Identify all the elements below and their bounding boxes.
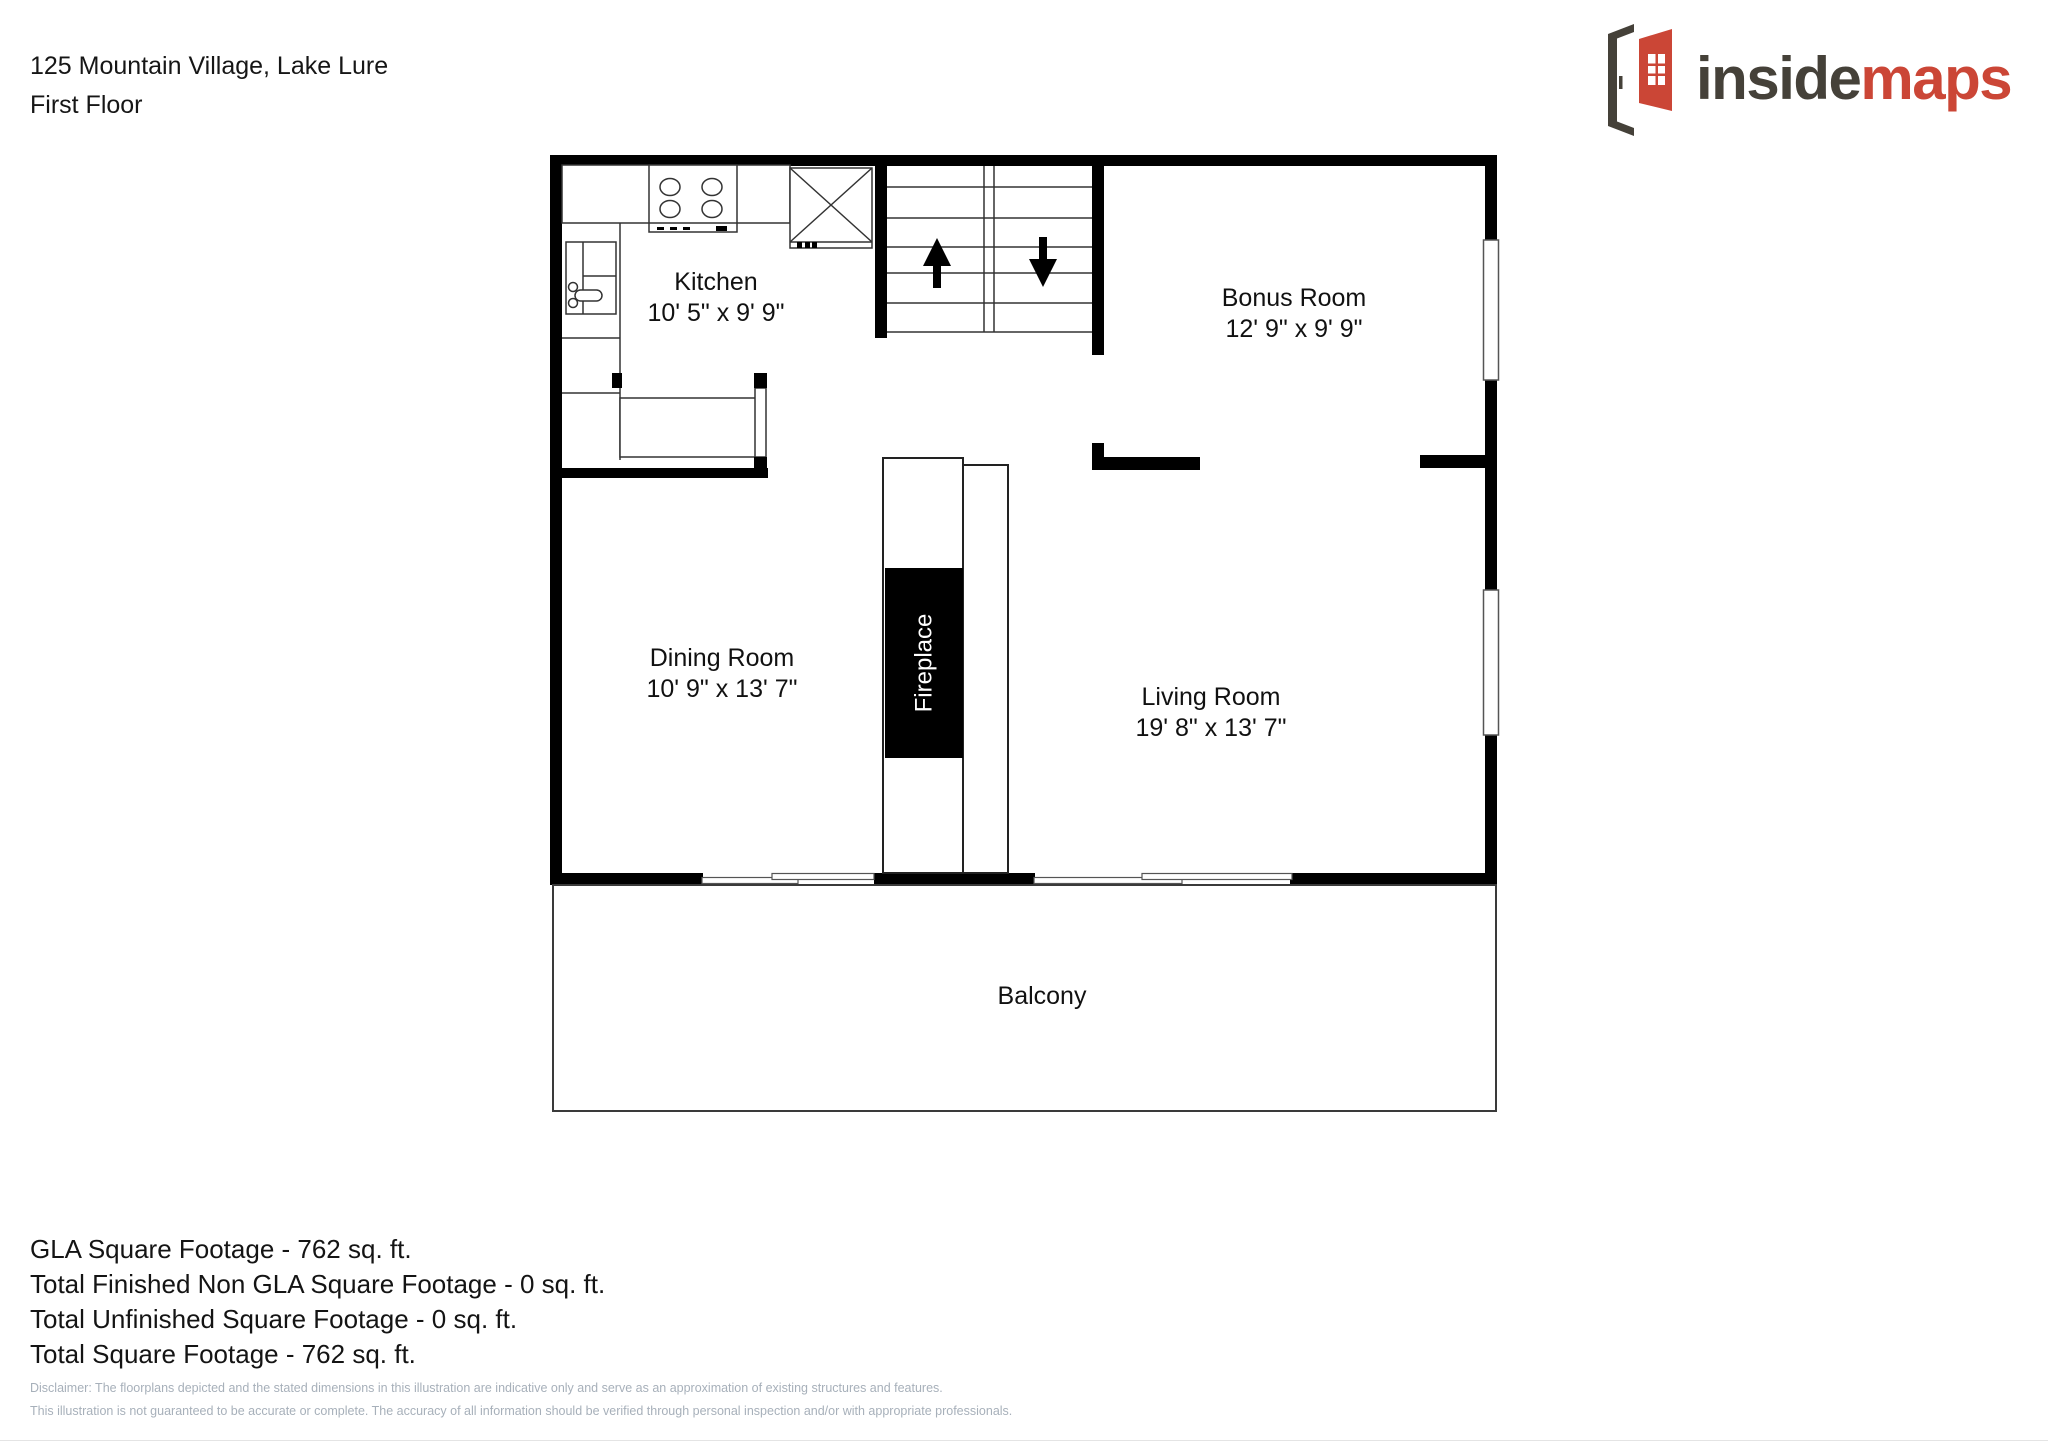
- stairs-up-arrow-icon: [923, 238, 951, 288]
- fireplace-label: Fireplace: [911, 614, 938, 713]
- gla-square-footage: GLA Square Footage - 762 sq. ft.: [30, 1232, 605, 1267]
- disclaimer-line-1: Disclaimer: The floorplans depicted and …: [30, 1377, 1012, 1400]
- open-door-icon: [1608, 22, 1682, 140]
- square-footage-summary: GLA Square Footage - 762 sq. ft. Total F…: [30, 1232, 605, 1372]
- outer-walls: [550, 155, 1497, 885]
- stairs-down-arrow-icon: [1029, 237, 1057, 287]
- logo-word-inside: inside: [1696, 45, 1860, 112]
- floorplan-drawing: Fireplace: [540, 140, 1510, 1130]
- header-address-block: 125 Mountain Village, Lake Lure First Fl…: [30, 47, 388, 125]
- living-room-dims: 19' 8" x 13' 7": [1135, 714, 1286, 742]
- bonus-room-dims: 12' 9" x 9' 9": [1225, 315, 1362, 343]
- unfinished-square-footage: Total Unfinished Square Footage - 0 sq. …: [30, 1302, 605, 1337]
- living-room-window: [1484, 590, 1499, 735]
- balcony-sliding-door-left: [702, 874, 874, 884]
- dining-room-label: Dining Room: [650, 644, 795, 672]
- kitchen-dims: 10' 5" x 9' 9": [647, 299, 784, 327]
- balcony-sliding-door-right: [1034, 874, 1292, 884]
- total-square-footage: Total Square Footage - 762 sq. ft.: [30, 1337, 605, 1372]
- page-bottom-edge: [0, 1440, 2048, 1441]
- disclaimer-line-2: This illustration is not guaranteed to b…: [30, 1400, 1012, 1423]
- non-gla-square-footage: Total Finished Non GLA Square Footage - …: [30, 1267, 605, 1302]
- balcony-label: Balcony: [998, 982, 1087, 1010]
- staircase: [875, 166, 1104, 355]
- bonus-room-label: Bonus Room: [1222, 284, 1367, 312]
- floorplan-page: 125 Mountain Village, Lake Lure First Fl…: [0, 0, 2048, 1447]
- interior-walls: [1092, 443, 1487, 470]
- disclaimer-block: Disclaimer: The floorplans depicted and …: [30, 1377, 1012, 1423]
- logo-word-maps: maps: [1860, 45, 2011, 112]
- insidemaps-logo: insidemaps: [1608, 22, 2011, 140]
- living-room-label: Living Room: [1142, 683, 1281, 711]
- fireplace: Fireplace: [883, 458, 1008, 873]
- floor-label: First Floor: [30, 86, 388, 125]
- logo-wordmark: insidemaps: [1696, 49, 2011, 113]
- bonus-room-window: [1484, 240, 1499, 380]
- address-line: 125 Mountain Village, Lake Lure: [30, 47, 388, 86]
- kitchen-label: Kitchen: [674, 268, 757, 296]
- appliance-x-icon: [790, 168, 872, 248]
- dining-room-dims: 10' 9" x 13' 7": [646, 675, 797, 703]
- stove-icon: [649, 165, 737, 232]
- sink-icon: [566, 242, 616, 314]
